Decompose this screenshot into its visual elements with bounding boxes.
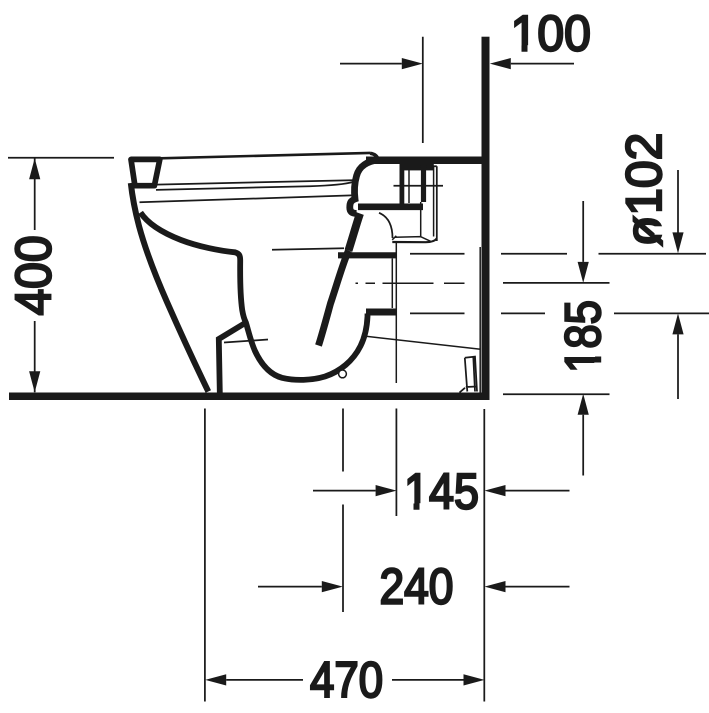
svg-text:100: 100 [511,6,591,62]
svg-text:240: 240 [379,559,453,615]
svg-text:400: 400 [7,235,62,315]
svg-text:470: 470 [310,651,383,708]
svg-text:ø102: ø102 [616,133,672,247]
svg-text:185: 185 [554,300,611,373]
svg-text:145: 145 [404,464,479,520]
